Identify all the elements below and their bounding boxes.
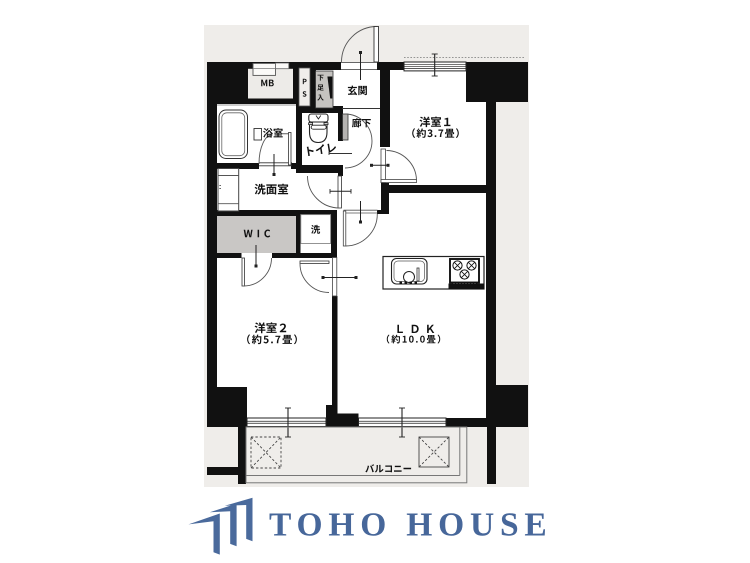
- svg-text:TOHO HOUSE: TOHO HOUSE: [269, 507, 553, 544]
